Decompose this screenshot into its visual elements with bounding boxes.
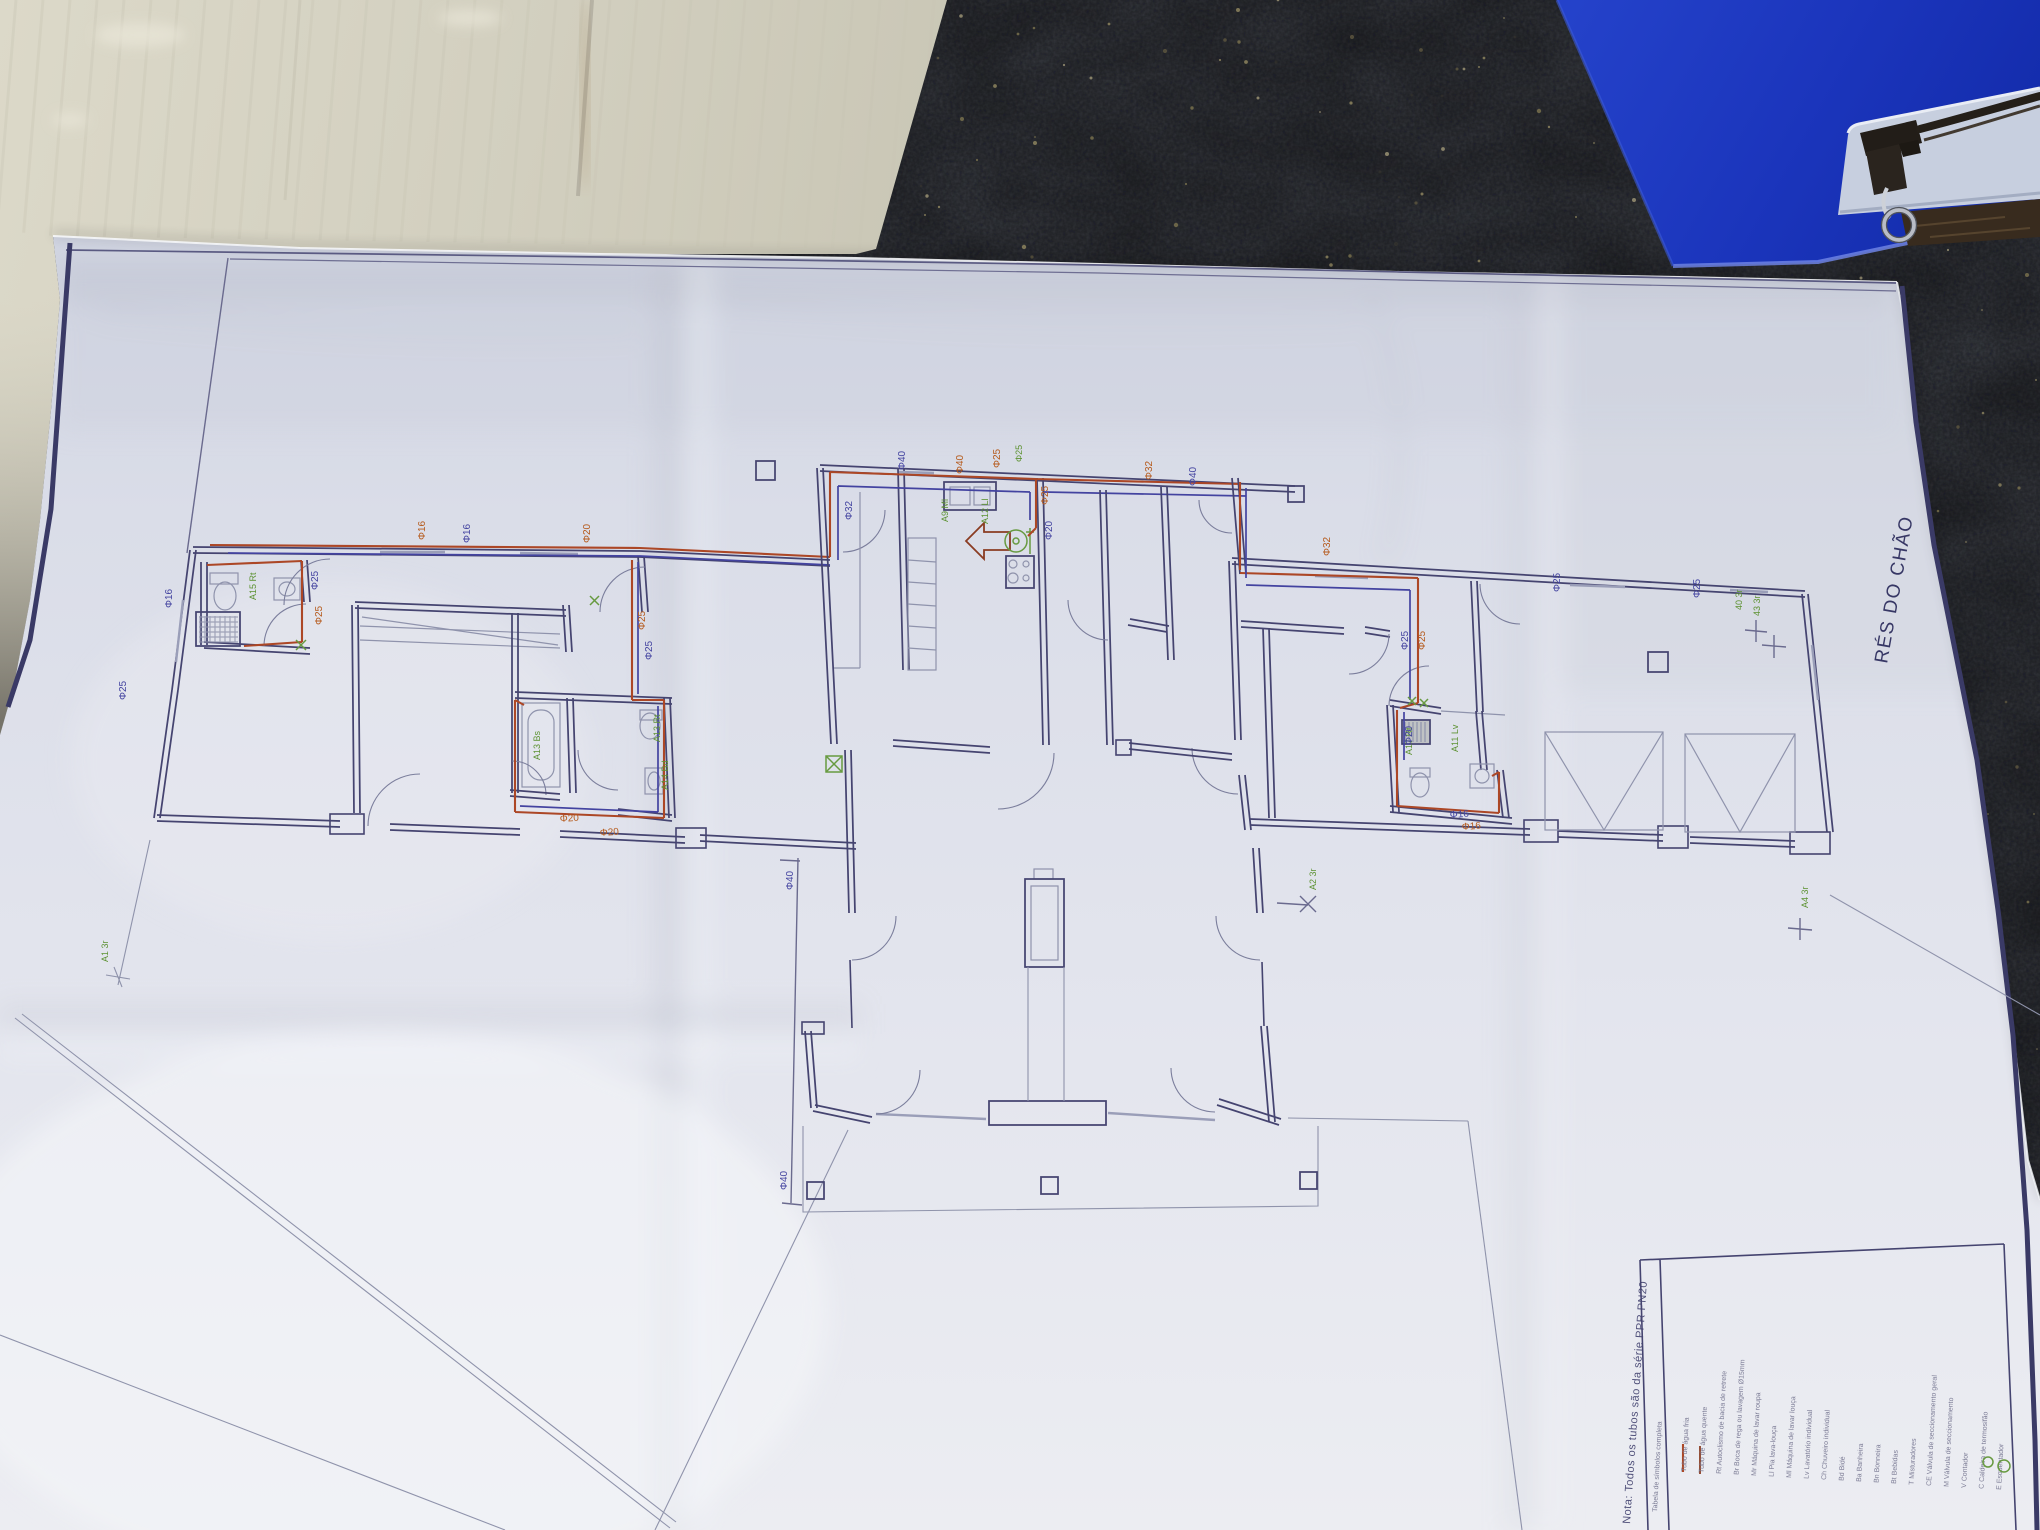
svg-text:Φ25: Φ25 bbox=[314, 605, 325, 625]
svg-text:A13 Rt: A13 Rt bbox=[652, 714, 662, 742]
svg-text:Φ16: Φ16 bbox=[417, 520, 428, 540]
svg-text:Φ25: Φ25 bbox=[1552, 572, 1563, 592]
svg-text:Φ16: Φ16 bbox=[1449, 809, 1469, 821]
svg-text:Φ16: Φ16 bbox=[164, 588, 175, 608]
svg-text:Φ40: Φ40 bbox=[785, 870, 796, 890]
svg-text:Φ25: Φ25 bbox=[992, 448, 1003, 468]
svg-text:Φ16: Φ16 bbox=[1461, 821, 1481, 833]
svg-text:Φ40: Φ40 bbox=[1188, 466, 1199, 486]
svg-text:43 3r: 43 3r bbox=[1752, 595, 1762, 616]
svg-text:A11 Lv: A11 Lv bbox=[1450, 724, 1460, 752]
svg-text:Φ25: Φ25 bbox=[1014, 445, 1024, 462]
svg-text:Φ25: Φ25 bbox=[644, 640, 655, 660]
svg-text:Φ16: Φ16 bbox=[462, 523, 473, 543]
svg-text:Bd Bidé: Bd Bidé bbox=[1839, 1456, 1847, 1481]
svg-text:A9 Ml: A9 Ml bbox=[940, 499, 950, 522]
svg-text:A2 3r: A2 3r bbox=[1308, 868, 1318, 890]
svg-text:Φ40: Φ40 bbox=[779, 1170, 790, 1190]
svg-text:Φ25: Φ25 bbox=[1040, 485, 1051, 505]
svg-text:Φ32: Φ32 bbox=[844, 500, 855, 520]
svg-text:Φ40: Φ40 bbox=[955, 454, 966, 474]
svg-text:A12 Ll: A12 Ll bbox=[980, 498, 990, 524]
svg-text:A4 3r: A4 3r bbox=[1800, 886, 1810, 908]
svg-text:Φ20: Φ20 bbox=[582, 523, 593, 543]
svg-text:Φ25: Φ25 bbox=[1400, 630, 1411, 650]
svg-text:A1 3r: A1 3r bbox=[100, 940, 110, 962]
svg-text:40 3r: 40 3r bbox=[1734, 589, 1744, 610]
svg-text:A14 Bd: A14 Bd bbox=[660, 760, 670, 790]
svg-text:Φ25: Φ25 bbox=[118, 680, 129, 700]
svg-text:Φ25: Φ25 bbox=[1692, 578, 1703, 598]
svg-text:A13 Bs: A13 Bs bbox=[532, 730, 542, 760]
svg-text:Φ32: Φ32 bbox=[1144, 460, 1155, 480]
svg-text:Φ25: Φ25 bbox=[310, 570, 321, 590]
svg-text:Φ32: Φ32 bbox=[1322, 536, 1333, 556]
svg-text:Φ20: Φ20 bbox=[599, 827, 619, 839]
svg-text:A15 Rt: A15 Rt bbox=[248, 572, 258, 600]
svg-text:Φ20: Φ20 bbox=[559, 813, 579, 825]
svg-text:Φ25: Φ25 bbox=[1417, 630, 1428, 650]
svg-text:Φ20: Φ20 bbox=[1404, 725, 1415, 745]
svg-text:Φ25: Φ25 bbox=[637, 610, 648, 630]
svg-text:Φ20: Φ20 bbox=[1044, 520, 1055, 540]
svg-text:Φ40: Φ40 bbox=[897, 450, 908, 470]
